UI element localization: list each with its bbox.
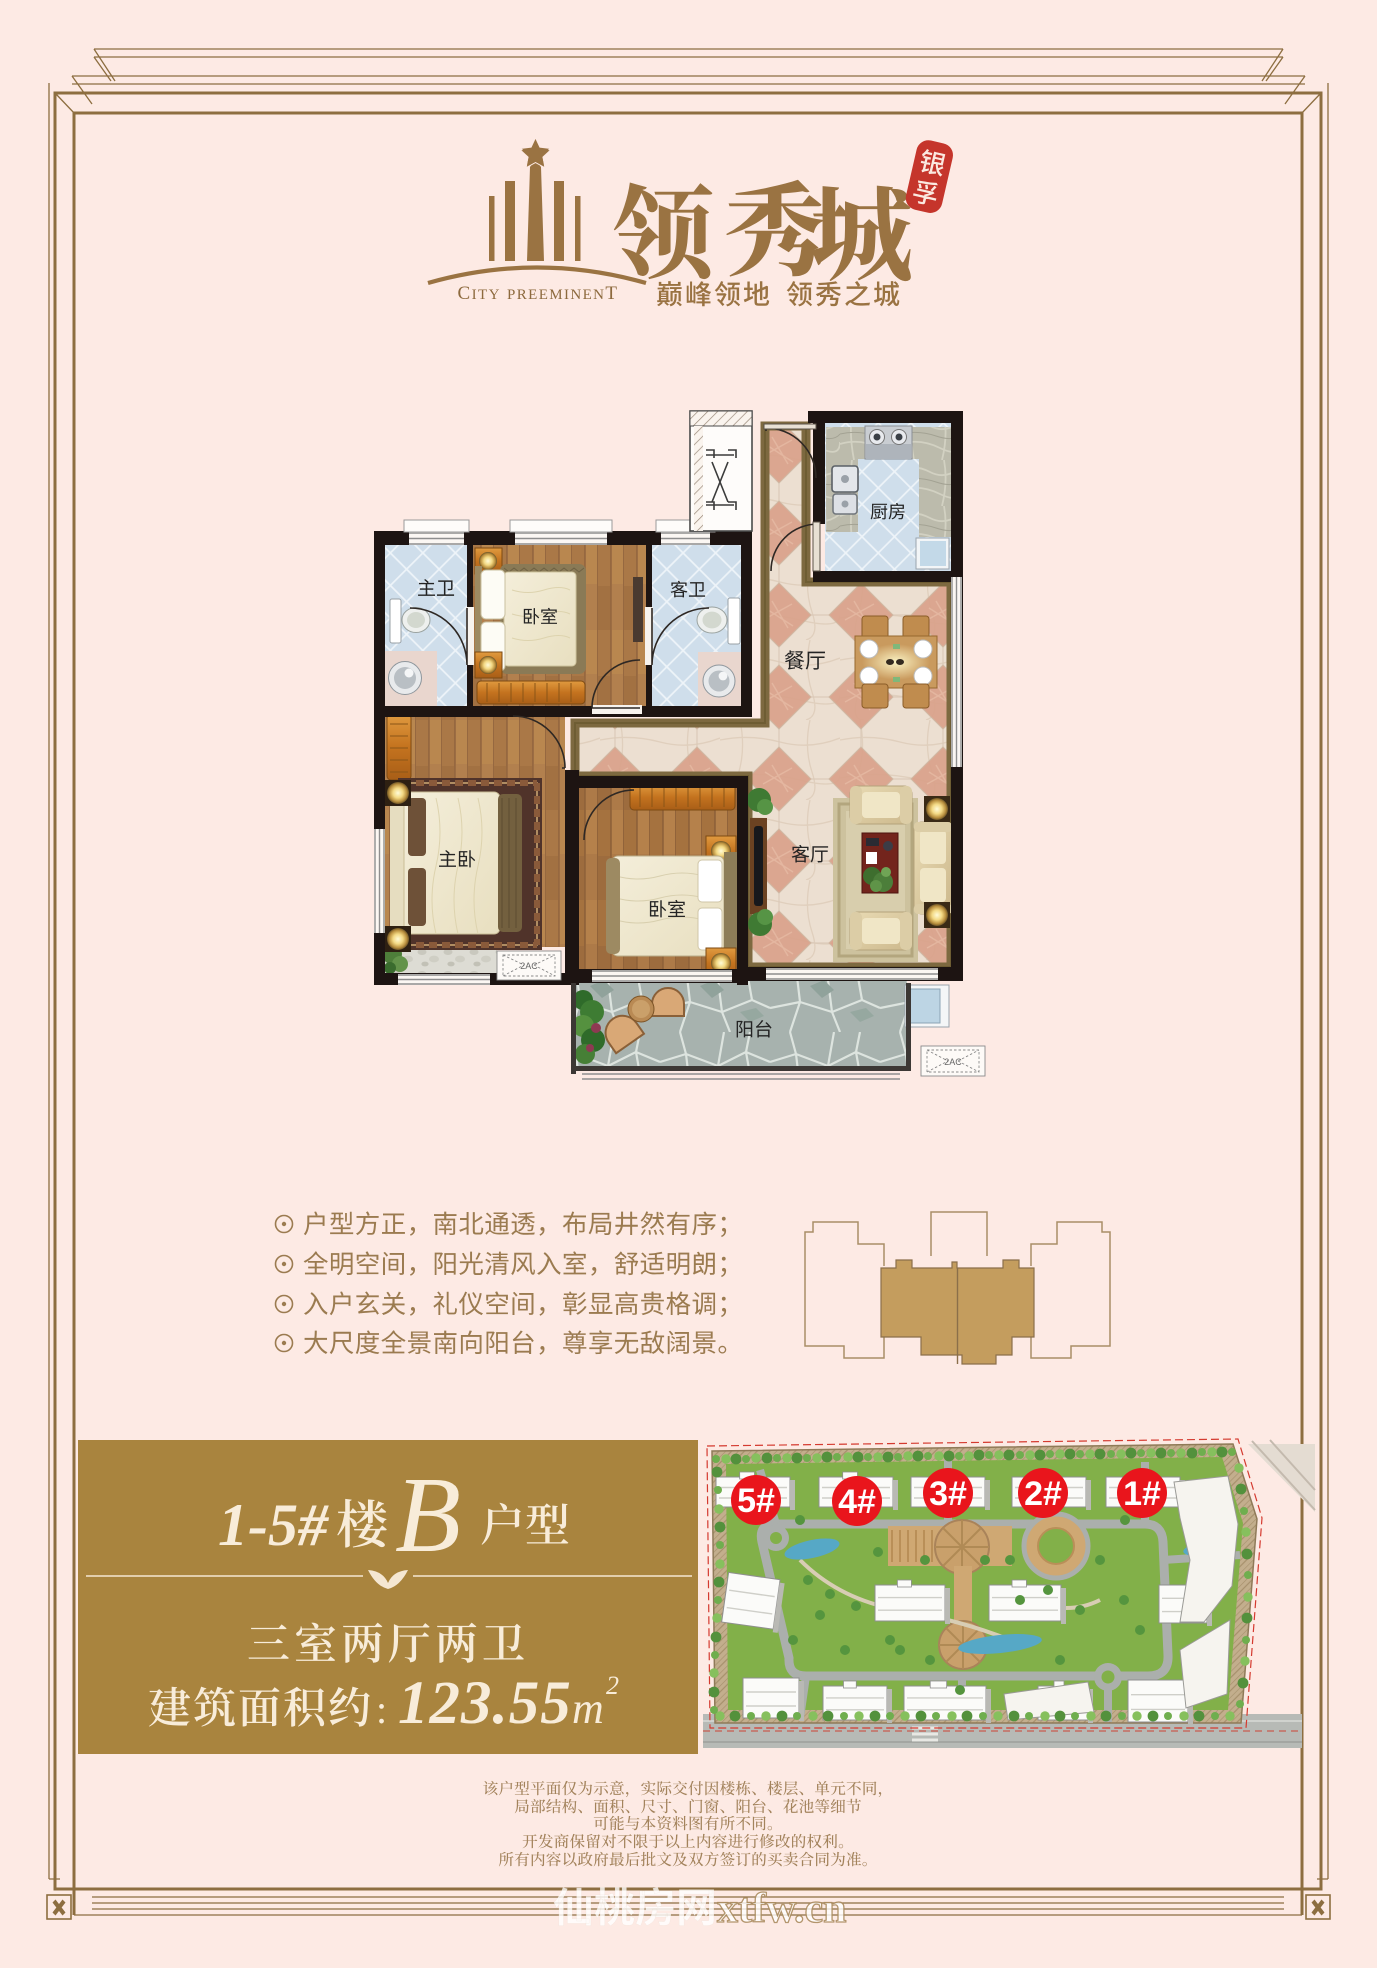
svg-text:2AC: 2AC [944,1057,962,1067]
svg-text:3#: 3# [929,1475,967,1513]
svg-text:2AC: 2AC [520,961,538,971]
svg-text:123.55: 123.55 [398,1670,572,1737]
svg-text:1-5#: 1-5# [218,1492,330,1558]
svg-text:5#: 5# [737,1482,775,1520]
svg-text:4#: 4# [838,1483,876,1521]
svg-text:B: B [395,1456,461,1575]
svg-text:2#: 2# [1024,1475,1062,1513]
svg-text:1#: 1# [1123,1475,1161,1513]
svg-text:m: m [572,1684,604,1733]
svg-text:2: 2 [606,1671,619,1700]
svg-text:xtfw.cn: xtfw.cn [717,1886,847,1932]
svg-text::: : [376,1687,387,1732]
svg-text:CITY PREEMINENT: CITY PREEMINENT [458,283,619,304]
